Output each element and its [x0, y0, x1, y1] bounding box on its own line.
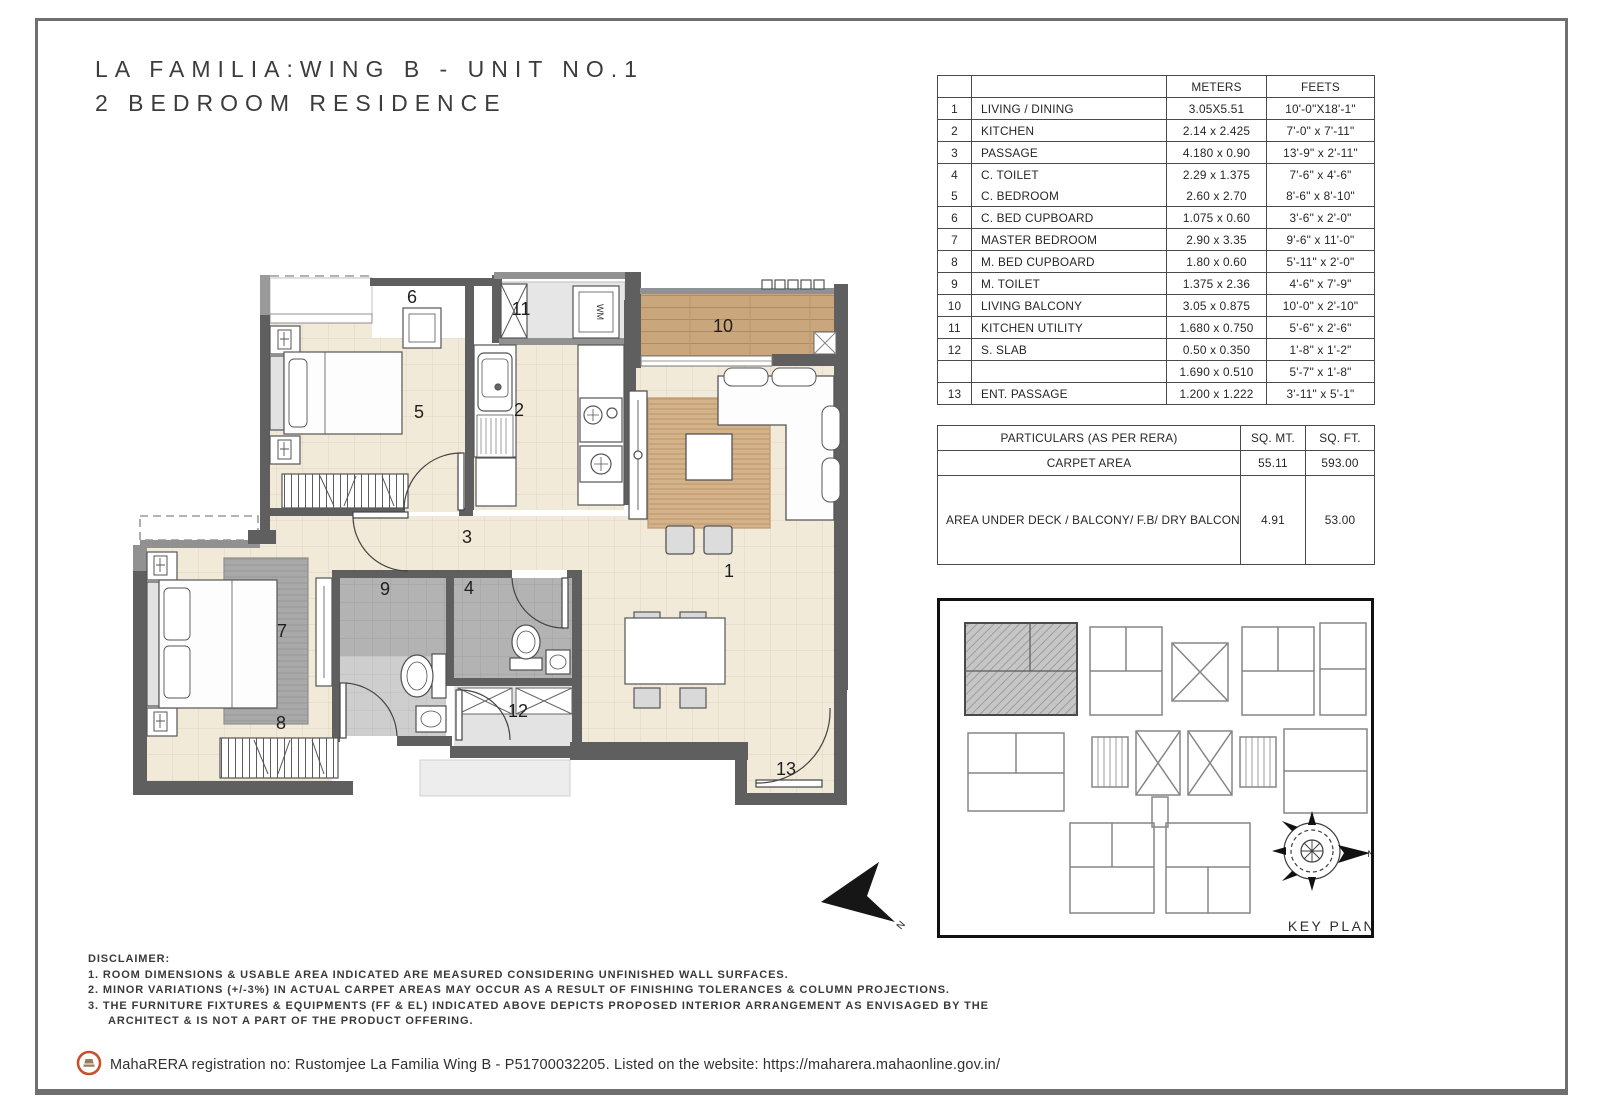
room-name: C. TOILET: [972, 164, 1167, 186]
room-feets: 10'-0" x 2'-10": [1267, 295, 1375, 317]
key-plan-label: KEY PLAN: [1288, 918, 1371, 934]
disclaimer-line: ARCHITECT & IS NOT A PART OF THE PRODUCT…: [88, 1014, 989, 1030]
room-feets: 8'-6" x 8'-10": [1267, 185, 1375, 207]
room-no: 2: [938, 120, 972, 142]
room-no: 4: [938, 164, 972, 186]
room-name: ENT. PASSAGE: [972, 383, 1167, 405]
room-no: 12: [938, 339, 972, 361]
sofa-cushion: [822, 406, 840, 450]
room-label-m-bed-cupboard: 8: [276, 713, 286, 733]
room-label-kitchen-utility: 11: [512, 299, 531, 319]
disclaimer-line: 3. THE FURNITURE FIXTURES & EQUIPMENTS (…: [88, 999, 989, 1015]
room-feets: 5'-11" x 2'-0": [1267, 251, 1375, 273]
rera-header-row: PARTICULARS (AS PER RERA) SQ. MT. SQ. FT…: [938, 426, 1375, 451]
north-arrow-glyph: [821, 862, 895, 922]
dimensions-row: 1.690 x 0.510 5'-7" x 1'-8": [938, 361, 1375, 383]
dimensions-row: 3 PASSAGE 4.180 x 0.90 13'-9" x 2'-11": [938, 142, 1375, 164]
room-no: 11: [938, 317, 972, 339]
washing-machine-label: WM: [595, 304, 605, 320]
toilet-tank: [432, 654, 446, 698]
room-label-living-balcony: 10: [713, 316, 733, 336]
c-bedroom: [270, 326, 408, 508]
bed-headboard: [270, 356, 284, 430]
carpet-area-sqft: 593.00: [1306, 451, 1375, 476]
footer: MahaRERA registration no: Rustomjee La F…: [76, 1050, 1000, 1080]
rera-table: PARTICULARS (AS PER RERA) SQ. MT. SQ. FT…: [937, 425, 1375, 565]
toilet-tank: [510, 658, 542, 670]
room-name: LIVING / DINING: [972, 98, 1167, 120]
room-no: 13: [938, 383, 972, 405]
room-name: KITCHEN: [972, 120, 1167, 142]
disclaimer-line: 1. ROOM DIMENSIONS & USABLE AREA INDICAT…: [88, 968, 989, 984]
room-label-passage: 3: [462, 527, 472, 547]
room-meters: 1.80 x 0.60: [1167, 251, 1267, 273]
key-plan: N KEY PLAN: [937, 598, 1374, 938]
dimensions-row: 4 C. TOILET 2.29 x 1.375 7'-6" x 4'-6": [938, 164, 1375, 186]
room-meters: 1.375 x 2.36: [1167, 273, 1267, 295]
key-plan-compass: [1272, 811, 1370, 891]
room-meters: 3.05X5.51: [1167, 98, 1267, 120]
dimensions-row: 2 KITCHEN 2.14 x 2.425 7'-0" x 7'-11": [938, 120, 1375, 142]
room-no: 5: [938, 185, 972, 207]
room-name: LIVING BALCONY: [972, 295, 1167, 317]
compass-north-pointer: [1338, 845, 1370, 863]
maharera-registration-text: MahaRERA registration no: Rustomjee La F…: [110, 1057, 1000, 1073]
room-label-ent-passage: 13: [776, 759, 796, 779]
north-arrow: N: [815, 858, 925, 948]
dimensions-header-row: METERS FEETS: [938, 76, 1375, 98]
dimensions-row: 1 LIVING / DINING 3.05X5.51 10'-0"X18'-1…: [938, 98, 1375, 120]
sofa-cushion: [724, 368, 768, 386]
coffee-table: [686, 434, 732, 480]
room-no: 7: [938, 229, 972, 251]
room-label-m-toilet: 9: [380, 579, 390, 599]
disclaimer-lines: 1. ROOM DIMENSIONS & USABLE AREA INDICAT…: [88, 968, 989, 1030]
rera-header-sqft: SQ. FT.: [1306, 426, 1375, 451]
room-no: 1: [938, 98, 972, 120]
rera-header-sqmt: SQ. MT.: [1241, 426, 1306, 451]
room-meters: 4.180 x 0.90: [1167, 142, 1267, 164]
room-name: MASTER BEDROOM: [972, 229, 1167, 251]
page-title: LA FAMILIA:WING B - UNIT NO.12 BEDROOM R…: [95, 52, 644, 120]
room-meters: 1.075 x 0.60: [1167, 207, 1267, 229]
room-label-c-bed-cupboard: 6: [407, 287, 417, 307]
pillow: [289, 359, 307, 427]
sofa-cushion: [822, 458, 840, 502]
room-feets: 13'-9" x 2'-11": [1267, 142, 1375, 164]
disclaimer-line: 2. MINOR VARIATIONS (+/-3%) IN ACTUAL CA…: [88, 983, 989, 999]
maharera-logo-icon: [76, 1050, 102, 1080]
pouf: [666, 526, 694, 554]
carpet-area-label: CARPET AREA: [938, 451, 1241, 476]
dimensions-row: 12 S. SLAB 0.50 x 0.350 1'-8" x 1'-2": [938, 339, 1375, 361]
carpet-area-row: CARPET AREA 55.11 593.00: [938, 451, 1375, 476]
carpet-area-sqmt: 55.11: [1241, 451, 1306, 476]
deck-area-sqmt: 4.91: [1241, 476, 1306, 565]
dimensions-row: 6 C. BED CUPBOARD 1.075 x 0.60 3'-6" x 2…: [938, 207, 1375, 229]
room-feets: 9'-6" x 11'-0": [1267, 229, 1375, 251]
col-header-meters: METERS: [1167, 76, 1267, 98]
room-meters: 3.05 x 0.875: [1167, 295, 1267, 317]
room-label-kitchen: 2: [514, 400, 524, 420]
deck-area-label: AREA UNDER DECK / BALCONY/ F.B/ DRY BALC…: [938, 476, 1241, 565]
room-meters: 1.680 x 0.750: [1167, 317, 1267, 339]
pouf: [704, 526, 732, 554]
title-line-2: 2 BEDROOM RESIDENCE: [95, 86, 644, 120]
room-meters: 2.29 x 1.375: [1167, 164, 1267, 186]
key-plan-highlighted-unit: [965, 623, 1077, 715]
room-label-c-bedroom: 5: [414, 402, 424, 422]
room-name: PASSAGE: [972, 142, 1167, 164]
room-label-s-slab: 12: [508, 701, 528, 721]
room-feets: 5'-6" x 2'-6": [1267, 317, 1375, 339]
dimensions-row: 11 KITCHEN UTILITY 1.680 x 0.750 5'-6" x…: [938, 317, 1375, 339]
dimensions-row: 9 M. TOILET 1.375 x 2.36 4'-6" x 7'-9": [938, 273, 1375, 295]
room-no: 8: [938, 251, 972, 273]
room-label-master-bedroom: 7: [277, 621, 287, 641]
room-meters: 2.90 x 3.35: [1167, 229, 1267, 251]
disclaimer: DISCLAIMER: 1. ROOM DIMENSIONS & USABLE …: [88, 952, 989, 1030]
c-bed-cupboard: [403, 308, 441, 348]
room-meters: 0.50 x 0.350: [1167, 339, 1267, 361]
room-feets: 4'-6" x 7'-9": [1267, 273, 1375, 295]
north-label: N: [895, 919, 908, 932]
room-feets: 10'-0"X18'-1": [1267, 98, 1375, 120]
room-no: [938, 361, 972, 383]
floor-plan: WM: [120, 260, 880, 840]
room-meters: 1.200 x 1.222: [1167, 383, 1267, 405]
room-meters: 1.690 x 0.510: [1167, 361, 1267, 383]
chair: [680, 688, 706, 708]
room-name: C. BED CUPBOARD: [972, 207, 1167, 229]
room-label-living-dining: 1: [724, 561, 734, 581]
room-feets: 7'-6" x 4'-6": [1267, 164, 1375, 186]
dimensions-row: 13 ENT. PASSAGE 1.200 x 1.222 3'-11" x 5…: [938, 383, 1375, 405]
room-name: [972, 361, 1167, 383]
room-name: M. BED CUPBOARD: [972, 251, 1167, 273]
room-name: C. BEDROOM: [972, 185, 1167, 207]
bed-headboard: [147, 582, 159, 706]
dining-table: [625, 618, 725, 684]
room-no: 6: [938, 207, 972, 229]
pillow: [164, 588, 190, 640]
room-feets: 7'-0" x 7'-11": [1267, 120, 1375, 142]
room-feets: 3'-11" x 5'-1": [1267, 383, 1375, 405]
room-no: 3: [938, 142, 972, 164]
pillow: [164, 646, 190, 698]
deck-area-row: AREA UNDER DECK / BALCONY/ F.B/ DRY BALC…: [938, 476, 1375, 565]
room-no: 9: [938, 273, 972, 295]
room-meters: 2.60 x 2.70: [1167, 185, 1267, 207]
room-label-c-toilet: 4: [464, 578, 474, 598]
room-name: KITCHEN UTILITY: [972, 317, 1167, 339]
room-no: 10: [938, 295, 972, 317]
title-line-1: LA FAMILIA:WING B - UNIT NO.1: [95, 52, 644, 86]
room-name: S. SLAB: [972, 339, 1167, 361]
room-name: M. TOILET: [972, 273, 1167, 295]
floor-plan-drawing: WM: [120, 260, 880, 840]
dimensions-row: 8 M. BED CUPBOARD 1.80 x 0.60 5'-11" x 2…: [938, 251, 1375, 273]
key-plan-north-label: N: [1368, 849, 1372, 859]
room-meters: 2.14 x 2.425: [1167, 120, 1267, 142]
room-feets: 3'-6" x 2'-0": [1267, 207, 1375, 229]
chair: [634, 688, 660, 708]
col-header-feets: FEETS: [1267, 76, 1375, 98]
dimensions-table-body: METERS FEETS 1 LIVING / DINING 3.05X5.51…: [938, 76, 1375, 405]
room-feets: 5'-7" x 1'-8": [1267, 361, 1375, 383]
dimensions-row: 5 C. BEDROOM 2.60 x 2.70 8'-6" x 8'-10": [938, 185, 1375, 207]
dimensions-row: 7 MASTER BEDROOM 2.90 x 3.35 9'-6" x 11'…: [938, 229, 1375, 251]
dimensions-table: METERS FEETS 1 LIVING / DINING 3.05X5.51…: [937, 75, 1375, 405]
dimensions-row: 10 LIVING BALCONY 3.05 x 0.875 10'-0" x …: [938, 295, 1375, 317]
room-feets: 1'-8" x 1'-2": [1267, 339, 1375, 361]
rera-header-particulars: PARTICULARS (AS PER RERA): [938, 426, 1241, 451]
sofa-cushion: [772, 368, 816, 386]
disclaimer-heading: DISCLAIMER:: [88, 952, 989, 968]
deck-area-sqft: 53.00: [1306, 476, 1375, 565]
